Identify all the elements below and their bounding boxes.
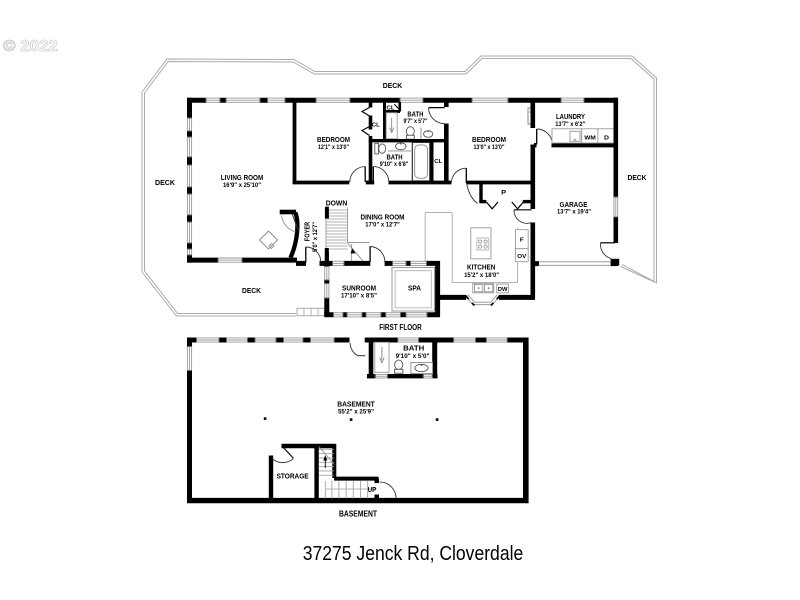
svg-text:DECK: DECK <box>628 173 648 182</box>
svg-text:CL: CL <box>372 123 381 129</box>
svg-text:DINING ROOM: DINING ROOM <box>361 215 405 222</box>
svg-text:13'7" x 19'4": 13'7" x 19'4" <box>557 209 591 216</box>
svg-text:CL: CL <box>387 106 396 112</box>
svg-text:KITCHEN: KITCHEN <box>467 265 496 272</box>
svg-text:BEDROOM: BEDROOM <box>317 137 350 144</box>
svg-text:SUNROOM: SUNROOM <box>342 286 376 293</box>
svg-text:DECK: DECK <box>383 81 403 90</box>
svg-text:15'2" x 18'0": 15'2" x 18'0" <box>464 272 499 279</box>
svg-text:© 2022: © 2022 <box>3 38 58 55</box>
svg-text:DECK: DECK <box>155 178 176 187</box>
svg-text:5'0" x 12'7": 5'0" x 12'7" <box>312 222 319 252</box>
svg-text:OV: OV <box>517 254 527 260</box>
svg-text:UP: UP <box>368 487 377 494</box>
svg-text:DOWN: DOWN <box>326 201 348 208</box>
svg-text:BATH: BATH <box>403 344 424 353</box>
svg-text:13'7" x 6'2": 13'7" x 6'2" <box>555 121 585 128</box>
svg-text:SPA: SPA <box>408 286 421 293</box>
svg-text:BEDROOM: BEDROOM <box>472 137 506 144</box>
svg-text:17'10" x 8'5": 17'10" x 8'5" <box>341 293 377 300</box>
svg-text:FOYER: FOYER <box>304 222 311 242</box>
svg-text:FIRST FLOOR: FIRST FLOOR <box>379 322 422 332</box>
svg-text:F: F <box>520 238 524 244</box>
svg-text:D: D <box>604 136 609 142</box>
svg-text:37275 Jenck Rd, Cloverdale: 37275 Jenck Rd, Cloverdale <box>303 543 524 565</box>
svg-text:WM: WM <box>584 136 596 142</box>
svg-text:13'0" x 13'0": 13'0" x 13'0" <box>474 144 505 151</box>
svg-text:P: P <box>501 190 507 197</box>
svg-text:DECK: DECK <box>242 286 262 295</box>
svg-text:DW: DW <box>498 287 508 293</box>
svg-text:9'10" x 6'8": 9'10" x 6'8" <box>380 161 409 168</box>
svg-text:BASEMENT: BASEMENT <box>339 509 378 519</box>
svg-text:STORAGE: STORAGE <box>277 474 309 481</box>
svg-text:12'1" x 13'0": 12'1" x 13'0" <box>318 144 349 151</box>
svg-text:16'9" x 25'10": 16'9" x 25'10" <box>223 182 261 189</box>
svg-text:LIVING ROOM: LIVING ROOM <box>221 175 264 182</box>
svg-text:9'7" x 5'7": 9'7" x 5'7" <box>404 118 428 125</box>
svg-text:CL: CL <box>434 159 443 165</box>
svg-text:17'0" x 12'7": 17'0" x 12'7" <box>365 222 400 229</box>
svg-text:9'10" x 5'0": 9'10" x 5'0" <box>396 353 430 360</box>
svg-text:55'2" x 25'9": 55'2" x 25'9" <box>338 409 374 416</box>
